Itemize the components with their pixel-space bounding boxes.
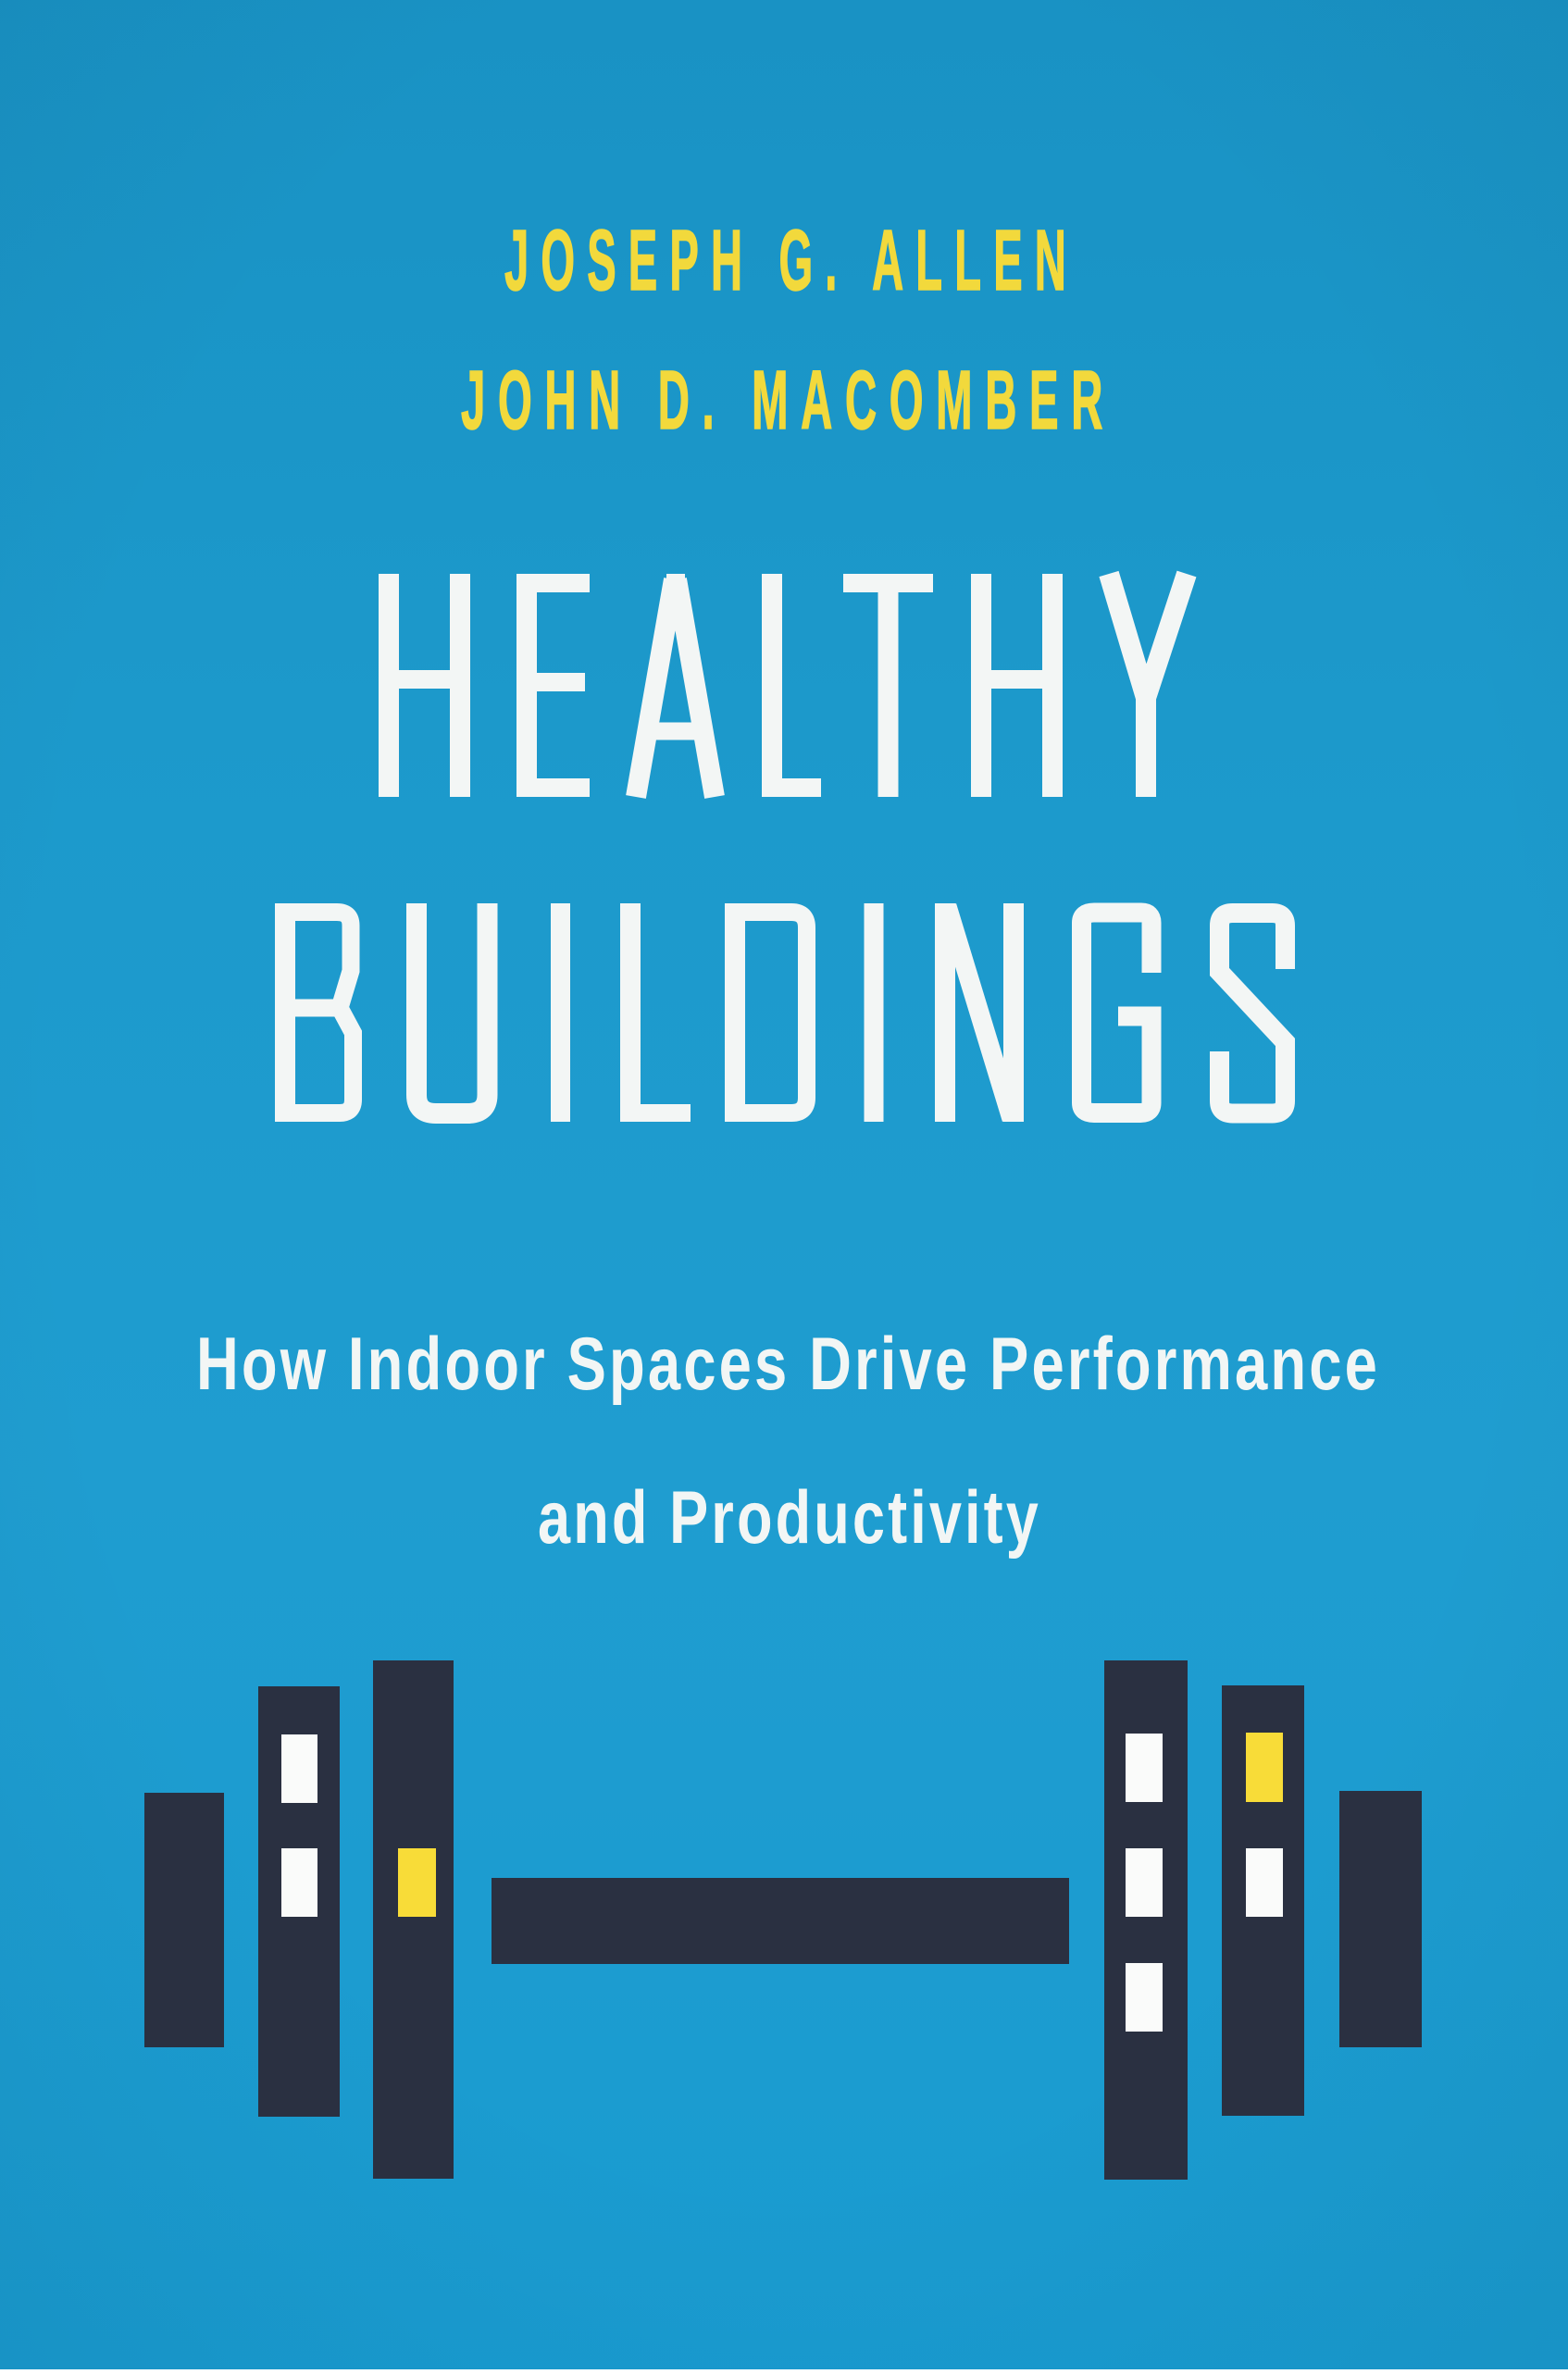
svg-text:How Indoor Spaces Drive Perfor: How Indoor Spaces Drive Performance <box>196 1323 1380 1406</box>
svg-text:JOSEPH G. ALLEN: JOSEPH G. ALLEN <box>504 212 1078 308</box>
svg-text:JOHN D. MACOMBER: JOHN D. MACOMBER <box>461 354 1115 447</box>
svg-text:and Productivity: and Productivity <box>538 1476 1041 1560</box>
